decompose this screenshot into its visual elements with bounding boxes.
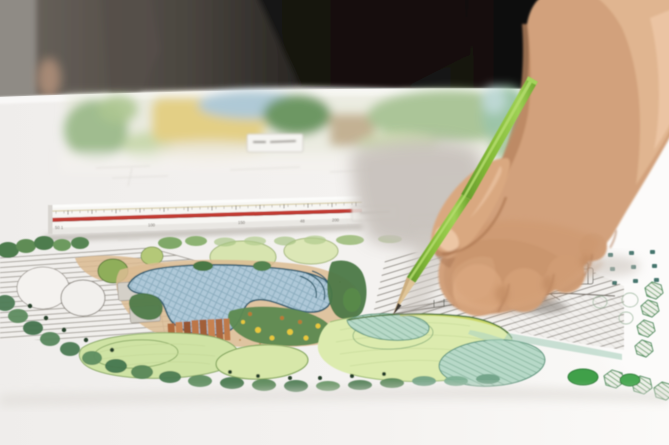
svg-text:200: 200 [332,218,340,223]
svg-text:48: 48 [300,218,305,223]
svg-text:100: 100 [148,223,156,228]
svg-text:150: 150 [238,220,246,225]
svg-text:50 1: 50 1 [55,225,64,230]
